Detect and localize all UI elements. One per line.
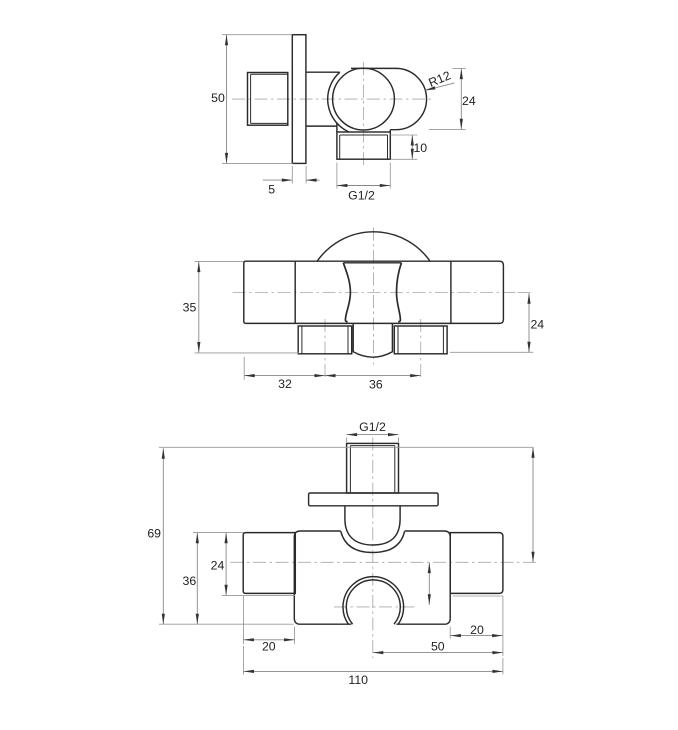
svg-text:24: 24 [211,559,225,573]
svg-text:35: 35 [183,300,197,314]
svg-text:110: 110 [348,673,368,687]
svg-text:24: 24 [530,317,544,331]
svg-text:50: 50 [211,91,225,105]
svg-text:G1/2: G1/2 [359,420,386,434]
svg-text:69: 69 [147,527,161,541]
svg-text:24: 24 [462,94,476,108]
svg-text:36: 36 [369,377,383,391]
svg-text:50: 50 [431,640,445,654]
svg-text:20: 20 [470,623,484,637]
svg-text:5: 5 [268,182,275,196]
svg-text:R12: R12 [426,68,452,90]
svg-text:G1/2: G1/2 [348,189,375,203]
svg-text:32: 32 [278,377,292,391]
svg-text:36: 36 [183,574,197,588]
svg-text:20: 20 [262,639,276,653]
svg-text:10: 10 [413,141,427,155]
